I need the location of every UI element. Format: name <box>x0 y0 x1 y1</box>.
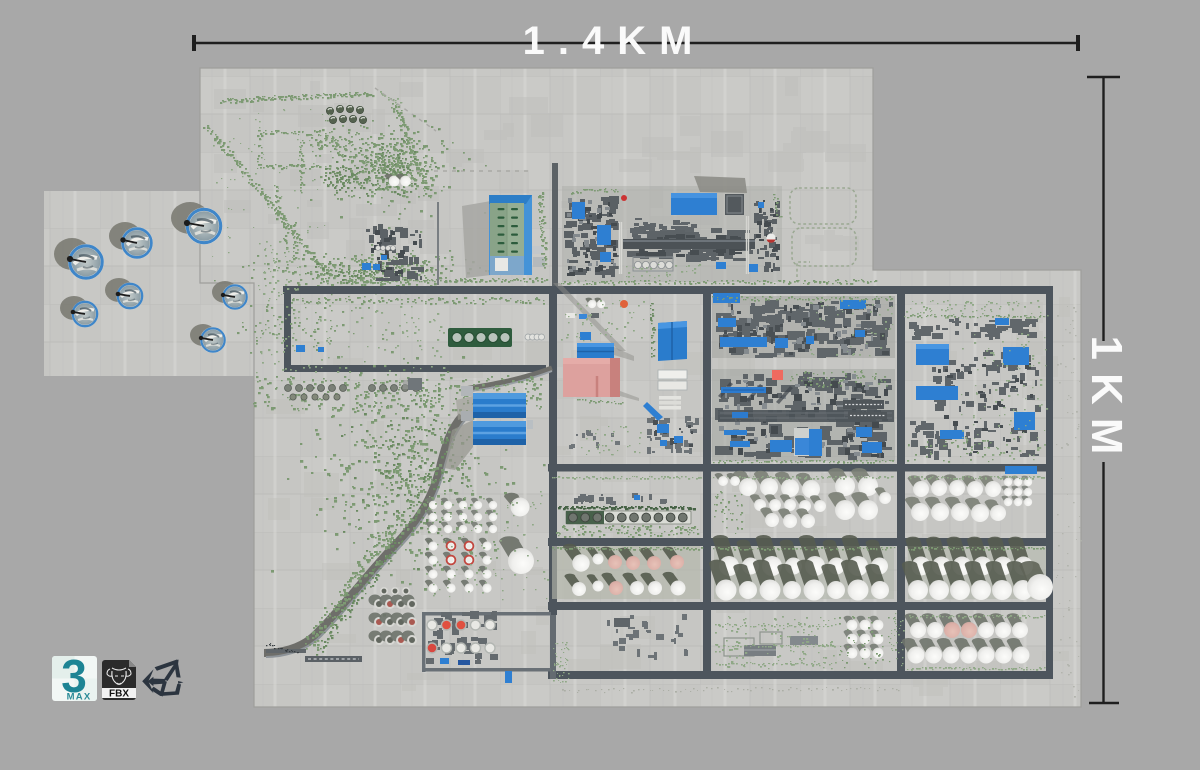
svg-text:1KM: 1KM <box>1082 336 1131 468</box>
svg-text:FBX: FBX <box>109 689 129 700</box>
svg-text:MAX: MAX <box>67 692 92 703</box>
svg-text:1.4KM: 1.4KM <box>523 19 706 63</box>
